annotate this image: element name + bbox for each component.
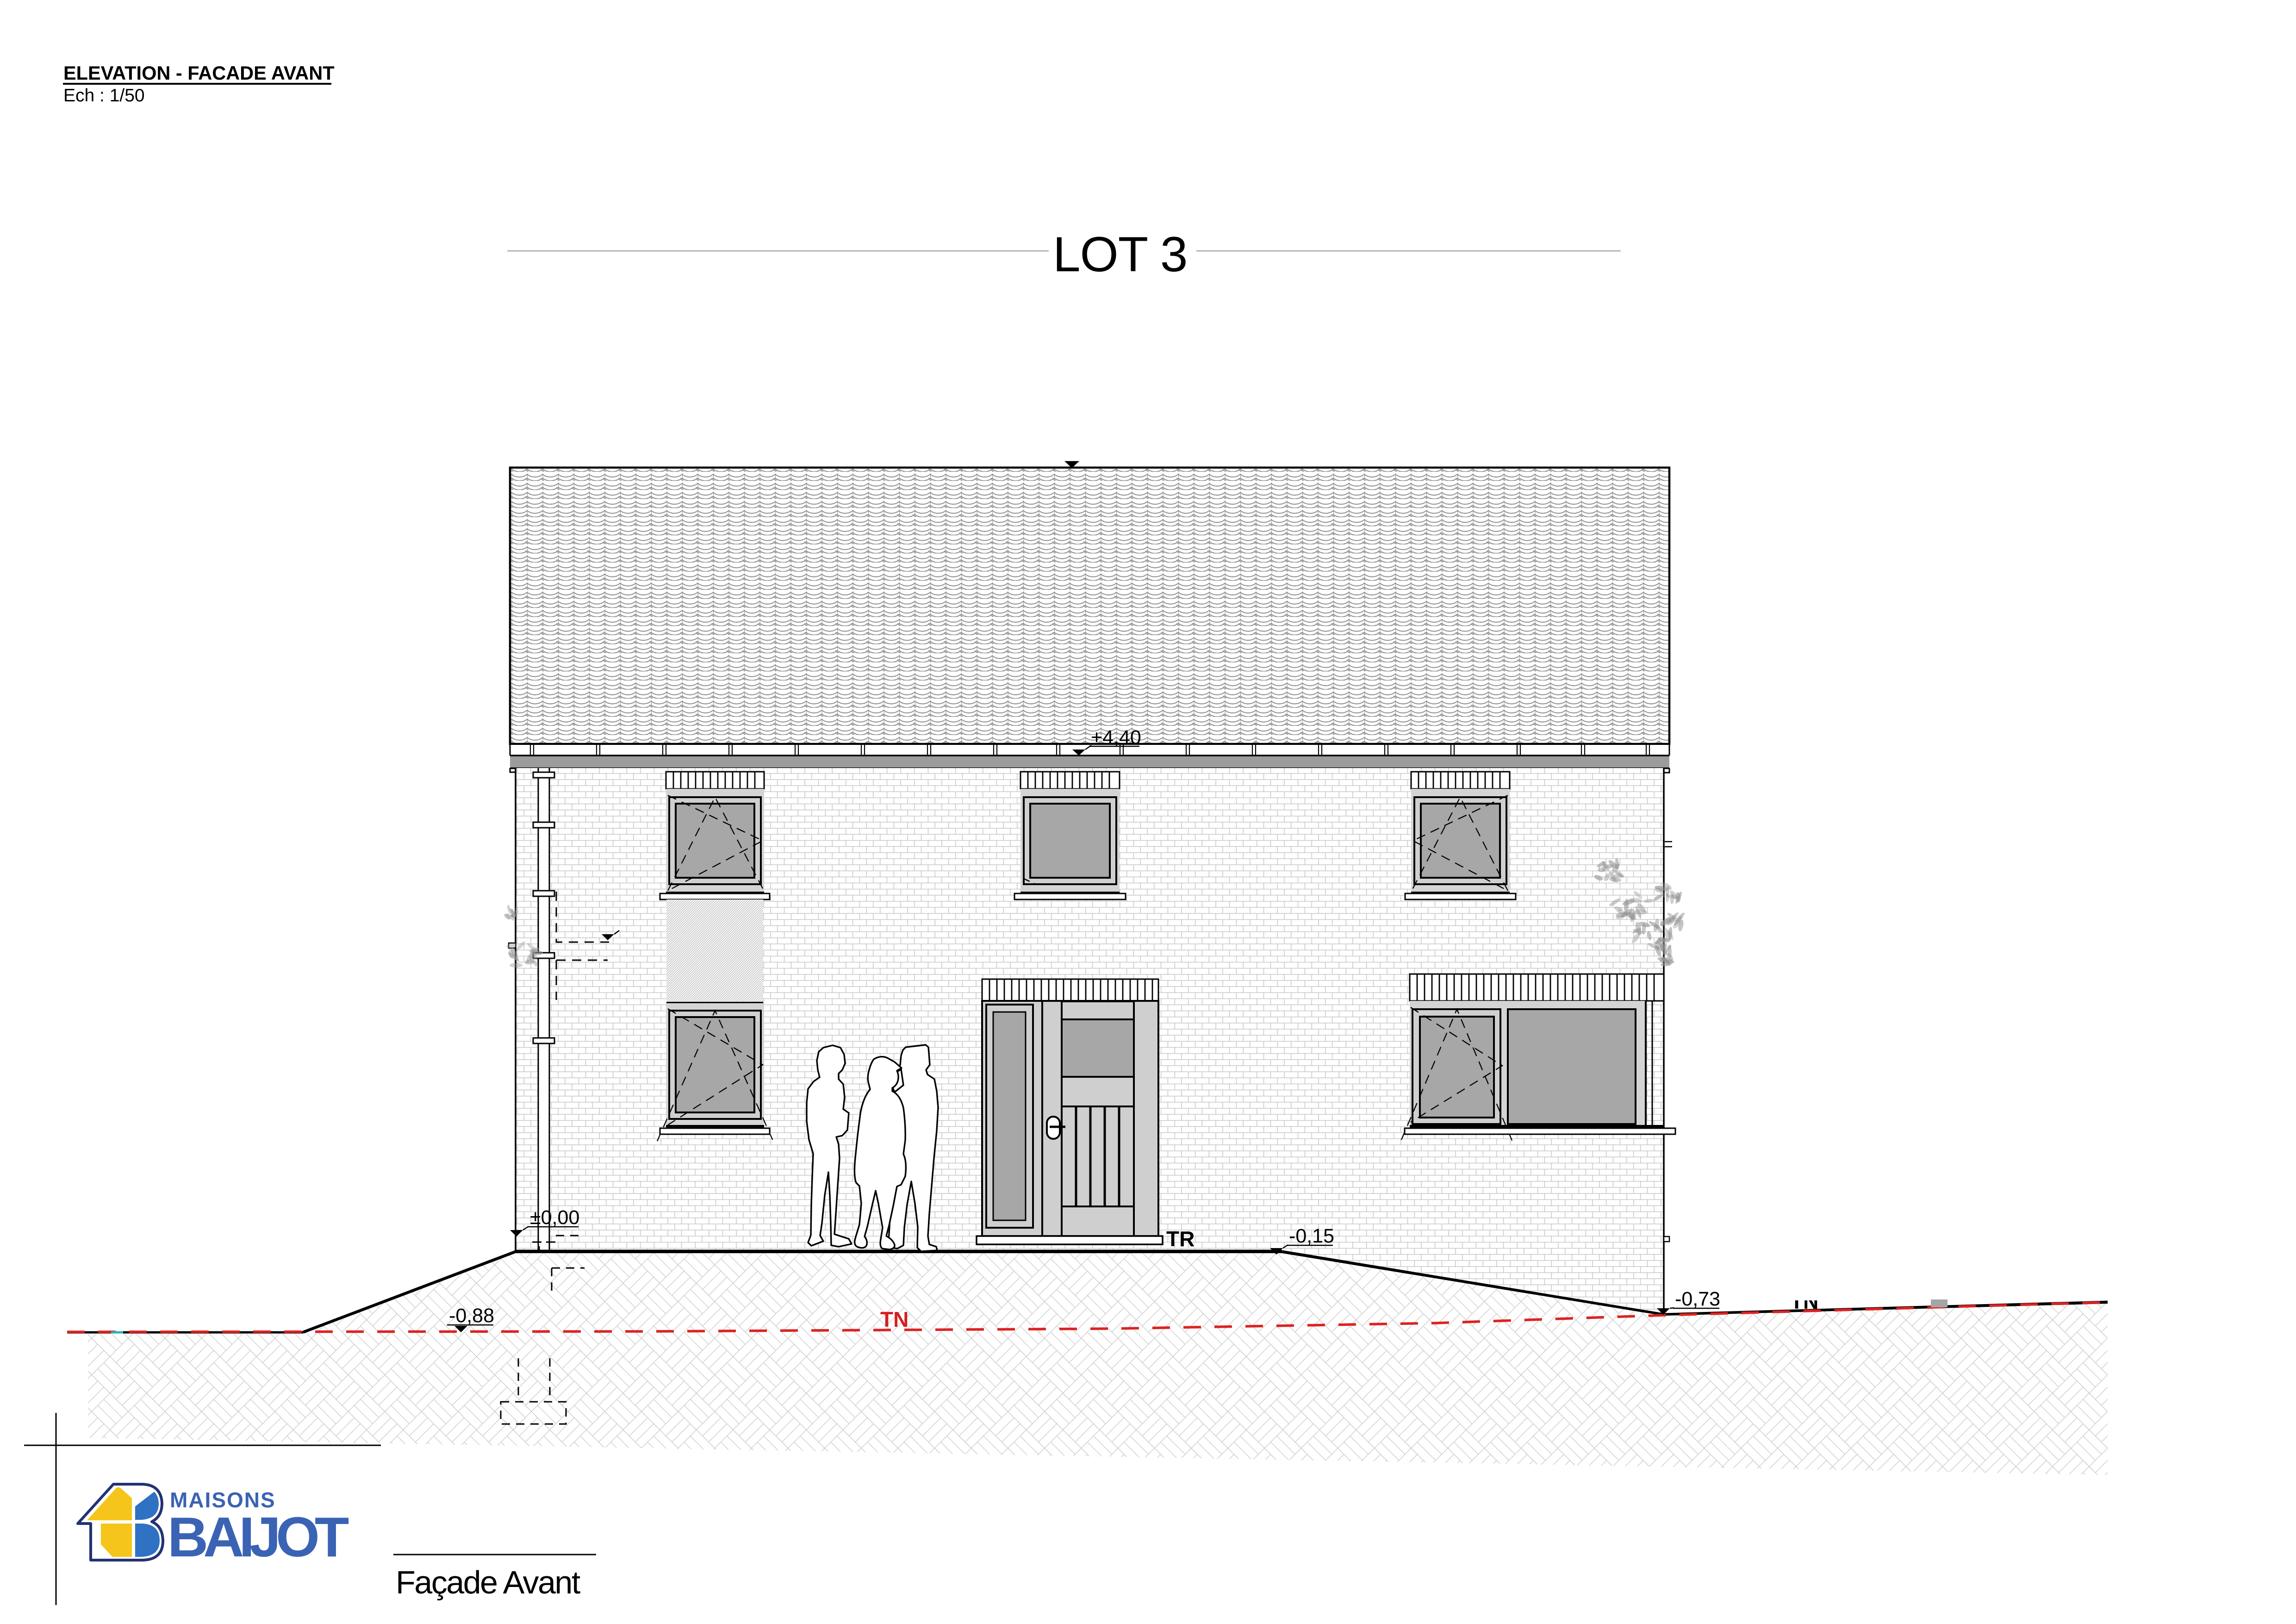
svg-text:±0,00: ±0,00	[530, 1206, 579, 1229]
svg-text:Ech : 1/50: Ech : 1/50	[63, 86, 145, 106]
svg-text:-0,88: -0,88	[449, 1305, 494, 1327]
svg-text:BAIJOT: BAIJOT	[168, 1505, 349, 1568]
svg-text:-0,73: -0,73	[1675, 1288, 1720, 1310]
svg-text:TR: TR	[1166, 1227, 1195, 1251]
svg-text:ELEVATION - FACADE AVANT: ELEVATION - FACADE AVANT	[63, 62, 335, 84]
svg-text:-0,15: -0,15	[1289, 1225, 1334, 1247]
svg-text:TN: TN	[880, 1307, 908, 1331]
svg-text:Façade Avant: Façade Avant	[396, 1564, 580, 1600]
svg-text:+4,40: +4,40	[1091, 726, 1141, 749]
svg-text:LOT 3: LOT 3	[1053, 226, 1187, 282]
